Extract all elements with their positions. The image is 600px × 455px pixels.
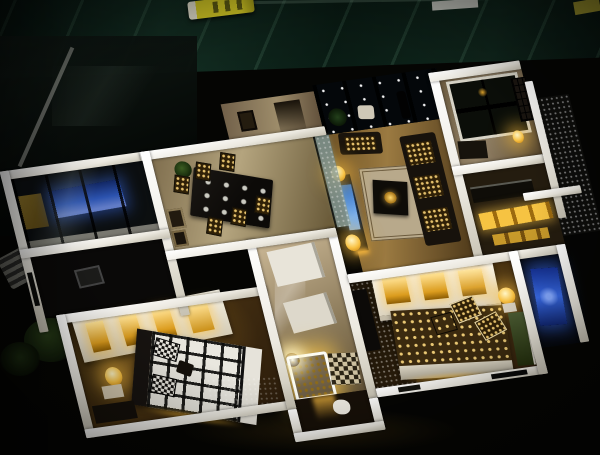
dining-chair — [173, 175, 190, 195]
toilet — [332, 400, 351, 415]
desk — [457, 140, 488, 159]
nightstand — [101, 384, 124, 399]
checkered-tile-floor — [328, 352, 362, 385]
sofa-cushion — [413, 174, 444, 199]
sofa-cushion — [405, 141, 436, 166]
marker-print — [212, 0, 243, 13]
coffee-table — [373, 180, 409, 216]
wall-art-frame — [237, 110, 258, 132]
wall-art-frame — [171, 230, 189, 248]
polka-dot-bed — [390, 305, 514, 380]
lit-cabinet-row — [478, 201, 553, 230]
dining-chair — [219, 152, 236, 172]
shrub — [0, 342, 40, 376]
gold-decor-item — [384, 191, 397, 204]
blue-glass-pattern — [538, 285, 559, 308]
lit-wardrobe-slot — [185, 302, 215, 333]
dining-chair — [230, 207, 247, 227]
sofa-single — [338, 132, 383, 155]
recessed-panel — [74, 265, 105, 289]
lit-wardrobe-door — [420, 272, 449, 300]
dining-chair — [206, 216, 223, 236]
lit-wardrobe-door — [382, 276, 411, 304]
dining-chair — [254, 195, 271, 215]
lit-wardrobe-slot — [85, 320, 111, 352]
shiny-floor-foil — [206, 376, 281, 406]
apartment-model — [0, 53, 594, 449]
dining-chair — [195, 161, 212, 181]
architectural-model-photo — [0, 0, 600, 455]
blown-highlight — [284, 352, 301, 368]
wall-art-frame — [166, 208, 187, 230]
sofa-cushion — [421, 207, 452, 232]
white-door-panel — [266, 242, 325, 287]
lit-cabinet-row — [492, 227, 550, 246]
blue-led-shower-panel — [530, 267, 567, 326]
lit-wardrobe-door — [457, 268, 486, 296]
sofa-cushion — [344, 136, 376, 151]
balcony-chair — [357, 105, 375, 119]
